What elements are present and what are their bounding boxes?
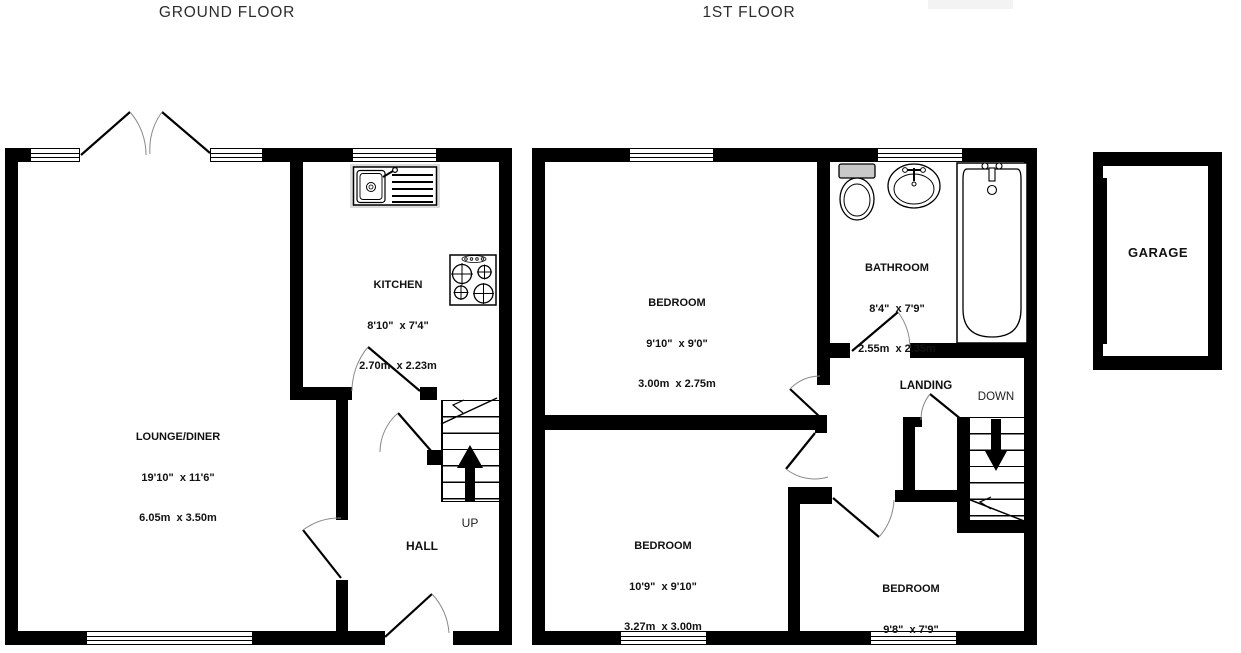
bathroom-label: BATHROOM 8'4" x 7'9" 2.55m x 2.35m [858, 235, 936, 384]
wall [453, 631, 499, 645]
down-label: DOWN [978, 391, 1014, 403]
stove-icon [450, 255, 496, 305]
wall [336, 580, 348, 631]
bedroom2-label: BEDROOM 10'9" x 9'10" 3.27m x 3.00m [624, 513, 702, 653]
wall [714, 148, 877, 162]
up-label: UP [462, 516, 479, 530]
wall [903, 417, 915, 502]
room-dims-imperial: 19'10" x 11'6" [136, 472, 220, 486]
basin-icon [888, 164, 940, 208]
kitchen-sink-icon [350, 164, 440, 208]
wall [437, 148, 499, 162]
watermark-fragment [928, 0, 1013, 9]
door-leaf [303, 530, 341, 578]
wall [5, 148, 18, 645]
wall [532, 148, 545, 645]
room-dims-imperial: 9'8" x 7'9" [872, 624, 950, 638]
door-arc [790, 376, 820, 389]
room-dims-metric: 3.27m x 3.00m [624, 621, 702, 635]
floorplan-canvas: GROUND FLOOR 1ST FLOOR LOUNGE/DINER 19'1… [0, 0, 1241, 653]
bedroom1-label: BEDROOM 9'10" x 9'0" 3.00m x 2.75m [638, 270, 716, 419]
stairs-up [441, 400, 499, 502]
hall-label: HALL [406, 539, 438, 553]
door-arc [879, 500, 894, 537]
door-leaf [81, 112, 130, 155]
door-leaf [162, 112, 210, 153]
wall [957, 417, 970, 528]
wall [1093, 356, 1222, 370]
wall-notch [1103, 166, 1108, 178]
room-name: BATHROOM [858, 262, 936, 276]
first-floor-title: 1ST FLOOR [702, 4, 795, 22]
room-dims-metric: 2.70m x 2.23m [359, 360, 437, 374]
wall [290, 162, 303, 400]
wall-notch [1103, 344, 1108, 356]
door-leaf [385, 594, 432, 637]
lounge-label: LOUNGE/DINER 19'10" x 11'6" 6.05m x 3.50… [136, 404, 220, 553]
garage-label: GARAGE [1128, 245, 1188, 260]
window [877, 148, 963, 162]
room-dims-metric: 6.05m x 3.50m [136, 512, 220, 526]
wall [957, 631, 1024, 645]
ground-floor-title: GROUND FLOOR [159, 4, 295, 22]
wall [253, 631, 385, 645]
wall [499, 148, 512, 645]
room-name: BEDROOM [624, 540, 702, 554]
landing-label: LANDING [900, 380, 952, 392]
wall [903, 417, 922, 427]
window [30, 148, 80, 162]
door-leaf [790, 389, 820, 417]
door-leaf [398, 413, 432, 452]
room-name: KITCHEN [359, 279, 437, 293]
door-arc [130, 112, 146, 155]
wall [1024, 148, 1037, 645]
room-name: LOUNGE/DINER [136, 431, 220, 445]
wall [963, 148, 1024, 162]
wall [788, 504, 800, 631]
wall [957, 520, 1037, 533]
door-arc [786, 469, 828, 479]
wall [532, 148, 629, 162]
door-leaf [833, 498, 879, 537]
door-arc [380, 413, 398, 452]
room-name: BEDROOM [638, 297, 716, 311]
stairs-down [970, 417, 1024, 520]
wall [532, 631, 620, 645]
room-dims-imperial: 9'10" x 9'0" [638, 338, 716, 352]
door-arc [150, 112, 162, 154]
bathtub-icon [957, 163, 1027, 343]
wall [5, 148, 30, 162]
wall [5, 631, 86, 645]
wall [1093, 152, 1107, 370]
wall [788, 487, 832, 504]
room-name: BEDROOM [872, 583, 950, 597]
room-dims-imperial: 8'4" x 7'9" [858, 303, 936, 317]
wall [336, 387, 348, 520]
wall [263, 148, 352, 162]
room-dims-metric: 3.00m x 2.75m [638, 378, 716, 392]
wall [1093, 152, 1222, 166]
door-arc [432, 594, 449, 633]
door-arc [921, 394, 930, 420]
plan-lines-layer [0, 0, 1241, 653]
window [629, 148, 714, 162]
kitchen-label: KITCHEN 8'10" x 7'4" 2.70m x 2.23m [359, 252, 437, 401]
bedroom3-label: BEDROOM 9'8" x 7'9" 2.95m x 2.35m [872, 556, 950, 653]
room-dims-metric: 2.55m x 2.35m [858, 343, 936, 357]
window [210, 148, 263, 162]
wall [1208, 152, 1222, 370]
wall [815, 415, 827, 433]
wall [817, 343, 850, 358]
room-dims-imperial: 10'9" x 9'10" [624, 581, 702, 595]
window [86, 631, 253, 645]
toilet-icon [839, 164, 875, 220]
window [352, 148, 437, 162]
room-dims-imperial: 8'10" x 7'4" [359, 320, 437, 334]
door-leaf [786, 433, 815, 469]
wall [707, 631, 870, 645]
